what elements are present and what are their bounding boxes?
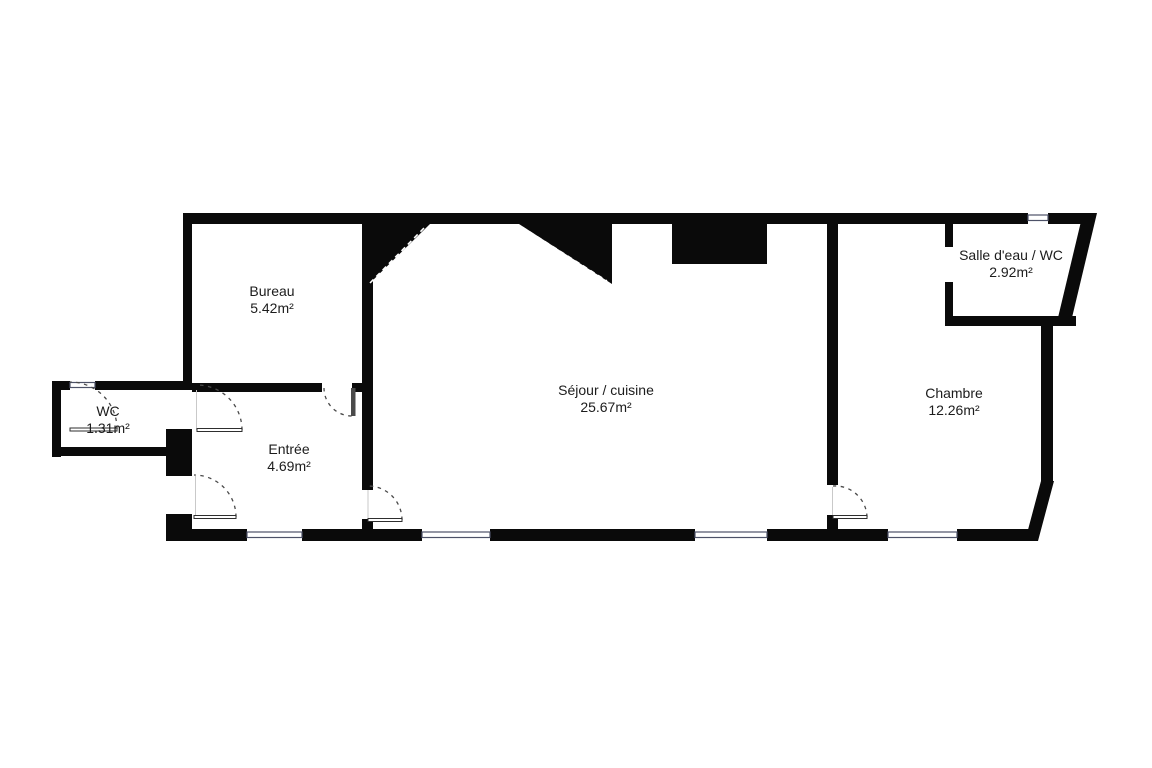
slope-wedge-mid: [519, 224, 612, 284]
window-bottom-sejour-left: [422, 529, 490, 541]
room-area: 1.31m²: [86, 420, 130, 437]
room-name: WC: [86, 403, 130, 420]
room-area: 25.67m²: [558, 399, 654, 416]
room-area: 12.26m²: [925, 402, 983, 419]
room-label-salle-eau: Salle d'eau / WC 2.92m²: [959, 247, 1063, 281]
room-name: Bureau: [249, 283, 294, 300]
wall-bureau-bottom-left: [192, 383, 322, 392]
room-name: Salle d'eau / WC: [959, 247, 1063, 264]
wall-wc-top-right: [95, 381, 192, 390]
wall-left-mid-chunk: [166, 429, 192, 476]
wall-wc-left: [52, 381, 61, 457]
door-chambre: [833, 486, 868, 519]
room-area: 4.69m²: [267, 458, 311, 475]
wall-bottom-3: [490, 529, 695, 541]
room-area: 5.42m²: [249, 300, 294, 317]
room-label-wc: WC 1.31m²: [86, 403, 130, 437]
door-bureau: [324, 388, 356, 416]
wall-bottom-1: [166, 529, 247, 541]
room-label-bureau: Bureau 5.42m²: [249, 283, 294, 317]
room-area: 2.92m²: [959, 264, 1063, 281]
wall-salle-eau-bottom: [945, 316, 1076, 326]
room-name: Chambre: [925, 385, 983, 402]
window-top-salle-eau: [1028, 213, 1048, 224]
room-label-chambre: Chambre 12.26m²: [925, 385, 983, 419]
window-bottom-chambre: [888, 529, 957, 541]
wall-salle-eau-left-bottom: [945, 282, 953, 320]
wall-left: [183, 213, 192, 390]
wall-wc-bottom: [52, 447, 168, 456]
window-wc: [70, 381, 95, 390]
wall-salle-eau-left-top: [945, 213, 953, 247]
window-bottom-sejour-right: [695, 529, 767, 541]
wall-bottom-5: [957, 529, 1030, 541]
door-entrance: [194, 475, 236, 519]
room-name: Entrée: [267, 441, 311, 458]
door-sejour: [368, 486, 402, 522]
wall-top-main: [183, 213, 1028, 224]
room-label-entree: Entrée 4.69m²: [267, 441, 311, 475]
wall-sejour-chambre: [827, 213, 838, 485]
window-bottom-entree: [247, 529, 302, 541]
floorplan-page: Bureau 5.42m² WC 1.31m² Entrée 4.69m² Sé…: [0, 0, 1152, 768]
room-name: Séjour / cuisine: [558, 382, 654, 399]
room-label-sejour: Séjour / cuisine 25.67m²: [558, 382, 654, 416]
wall-chambre-right: [1041, 320, 1053, 483]
wall-bottom-right-chamfer: [1025, 481, 1054, 541]
chimney-block: [672, 213, 767, 264]
